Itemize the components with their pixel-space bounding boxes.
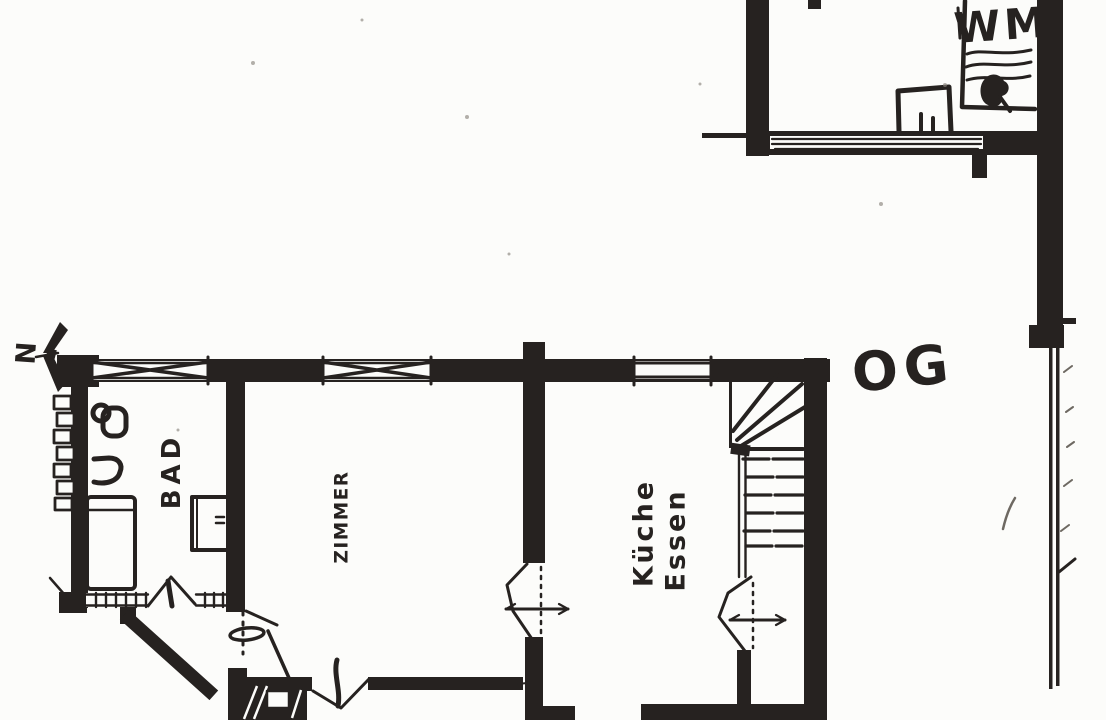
wall-laundry-stub (972, 155, 987, 178)
wall-top-edge-mark (808, 0, 821, 9)
wall-laundry-west-extension (702, 133, 748, 138)
wall-bathroom-east (226, 377, 245, 612)
window-room-north (323, 357, 431, 384)
room-label-bathroom: BAD (157, 433, 187, 510)
terrace-edge-line-inner (1056, 348, 1060, 686)
wall-room-east-lower (525, 637, 543, 720)
window-bathroom-south-2 (196, 593, 226, 607)
window-bathroom-south (86, 593, 148, 607)
wall-room-east-tick (518, 683, 527, 684)
terrace-edge-line-outer (1049, 348, 1053, 689)
wall-laundry-east (1037, 0, 1063, 332)
room-label-kitchen-line1: Küche (628, 479, 659, 587)
stairs-boundary-line (729, 378, 732, 448)
window-bathroom-north (92, 357, 208, 384)
floor-label: OG (849, 332, 957, 405)
wall-bathroom-south-west (59, 592, 87, 613)
wall-laundry-east-tick (1063, 318, 1076, 324)
north-label: N (8, 341, 41, 366)
room-label-room: ZIMMER (331, 471, 352, 564)
wall-stair-stub (737, 650, 751, 707)
washing-machine-label: WM (952, 0, 1051, 53)
wall-laundry-east-pier (1029, 325, 1064, 348)
wall-exterior-east (804, 358, 827, 720)
room-label-kitchen-line2: Essen (660, 488, 691, 591)
wall-kitchen-south (641, 704, 827, 720)
wall-room-east-foot (543, 706, 575, 720)
scanned-floor-plan-page: WM OG N (0, 0, 1106, 720)
window-bathroom-west-radiator (54, 396, 74, 510)
wall-room-east-upper (523, 342, 545, 563)
floor-plan-drawing: WM OG N (0, 0, 1106, 720)
chimney (237, 684, 307, 720)
wall-room-south-east-segment (368, 677, 523, 690)
